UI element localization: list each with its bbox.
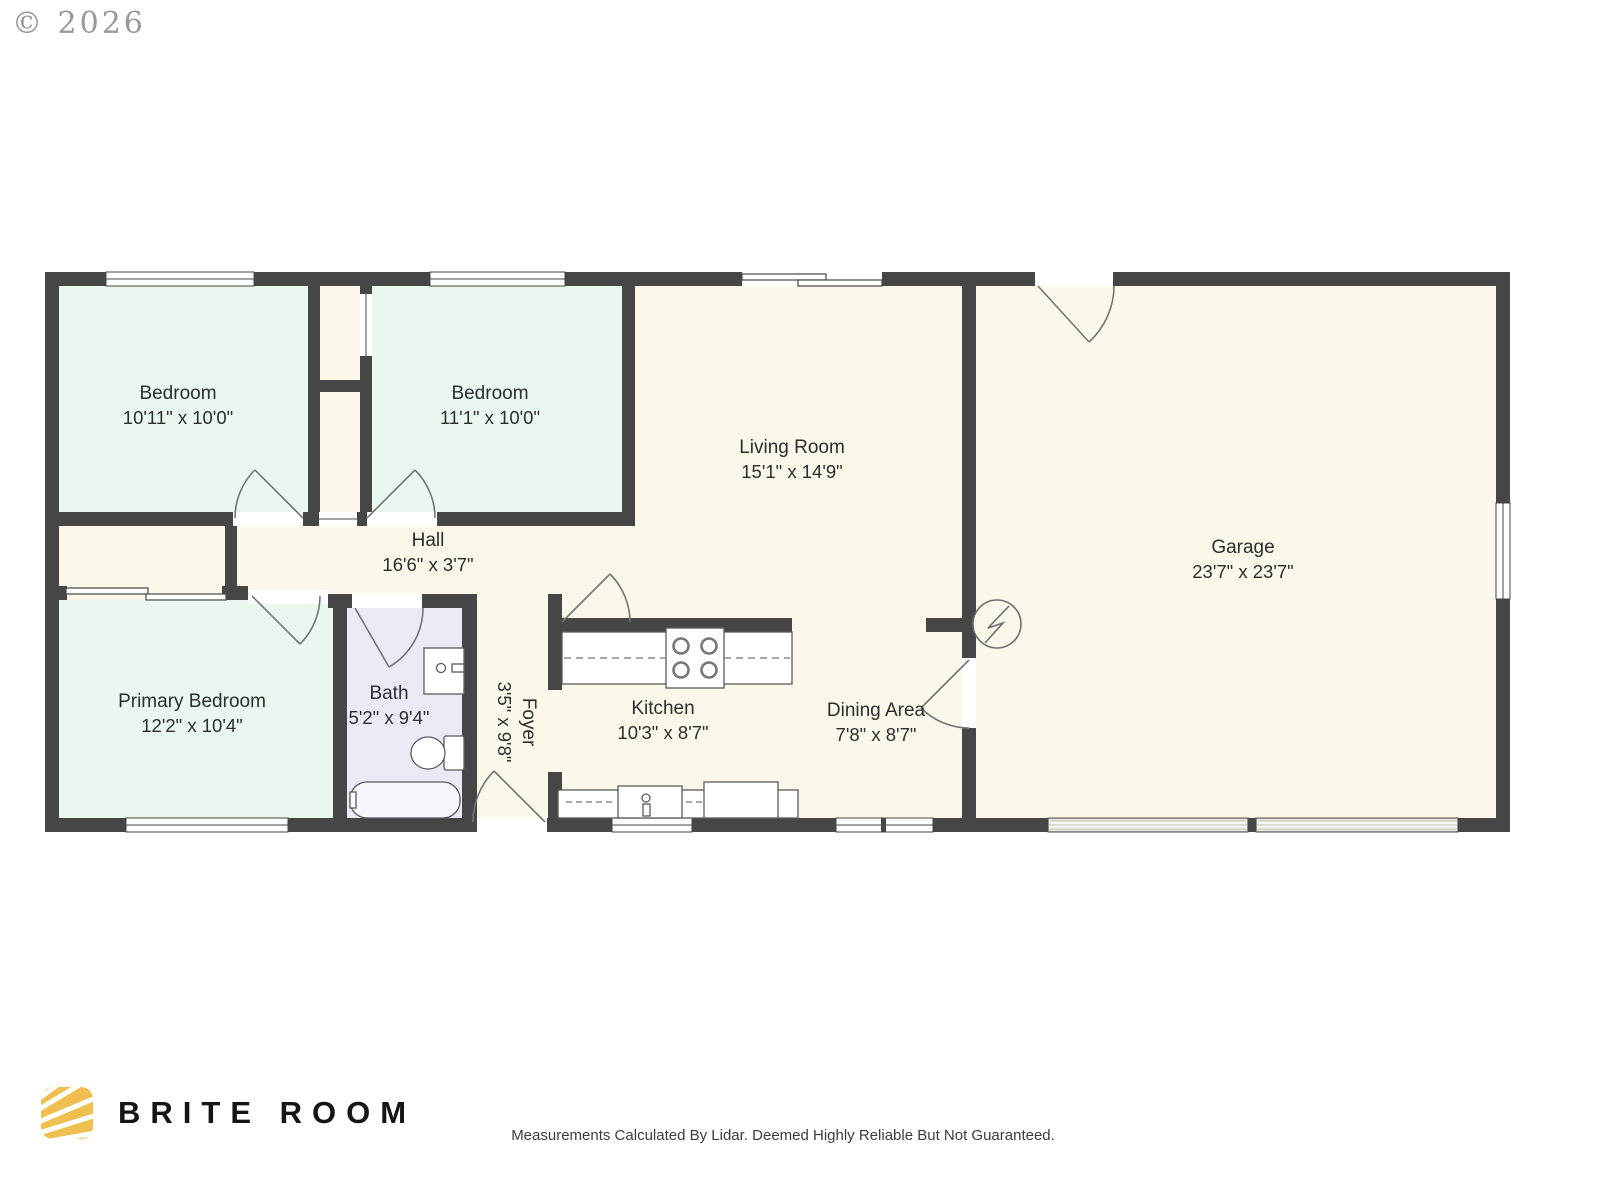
- room-name: Primary Bedroom: [118, 690, 266, 713]
- room-dims: 12'2" x 10'4": [118, 713, 266, 738]
- room-name: Kitchen: [617, 697, 708, 720]
- room-name: Foyer: [517, 682, 540, 763]
- room-name: Bedroom: [440, 382, 540, 405]
- room-dims: 5'2" x 9'4": [349, 705, 430, 730]
- room-label-foyer: Foyer 3'5" x 9'8": [492, 682, 540, 763]
- room-dims: 7'8" x 8'7": [827, 722, 925, 747]
- brand-logo: BRITE ROOM: [40, 1086, 416, 1140]
- room-name: Dining Area: [827, 699, 925, 722]
- electrical-panel-icon: [973, 600, 1021, 648]
- room-name: Bedroom: [123, 382, 233, 405]
- room-label-bath: Bath 5'2" x 9'4": [349, 682, 430, 730]
- room-name: Hall: [382, 529, 473, 552]
- room-dims: 3'5" x 9'8": [492, 682, 517, 763]
- room-label-garage: Garage 23'7" x 23'7": [1192, 536, 1293, 584]
- room-label-bedroom-2: Bedroom 11'1" x 10'0": [440, 382, 540, 430]
- floor-plan-drawing: [0, 0, 1600, 1200]
- room-dims: 15'1" x 14'9": [739, 459, 845, 484]
- floor-plan-page: © 2026: [0, 0, 1600, 1200]
- room-dims: 16'6" x 3'7": [382, 552, 473, 577]
- room-label-living-room: Living Room 15'1" x 14'9": [739, 436, 845, 484]
- room-label-dining-area: Dining Area 7'8" x 8'7": [827, 699, 925, 747]
- room-name: Bath: [349, 682, 430, 705]
- brite-room-logo-icon: [40, 1086, 94, 1140]
- room-label-hall: Hall 16'6" x 3'7": [382, 529, 473, 577]
- room-dims: 10'11" x 10'0": [123, 405, 233, 430]
- room-dims: 23'7" x 23'7": [1192, 559, 1293, 584]
- room-label-kitchen: Kitchen 10'3" x 8'7": [617, 697, 708, 745]
- brand-name: BRITE ROOM: [118, 1095, 416, 1131]
- room-name: Garage: [1192, 536, 1293, 559]
- room-label-bedroom-1: Bedroom 10'11" x 10'0": [123, 382, 233, 430]
- room-dims: 11'1" x 10'0": [440, 405, 540, 430]
- room-name: Living Room: [739, 436, 845, 459]
- room-label-primary-bedroom: Primary Bedroom 12'2" x 10'4": [118, 690, 266, 738]
- room-dims: 10'3" x 8'7": [617, 720, 708, 745]
- disclaimer-text: Measurements Calculated By Lidar. Deemed…: [511, 1127, 1055, 1144]
